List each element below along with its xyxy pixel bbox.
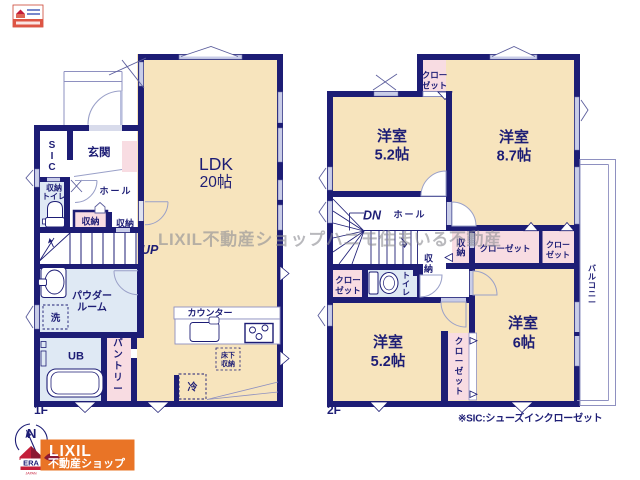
svg-text:ホール: ホール [99,186,132,196]
svg-text:S: S [49,140,56,151]
svg-text:20帖: 20帖 [200,173,233,191]
svg-text:UB: UB [68,351,84,363]
svg-text:2F: 2F [327,403,341,417]
svg-text:ト: ト [113,361,123,372]
svg-text:洋室: 洋室 [373,333,403,351]
svg-text:ホール: ホール [393,210,426,220]
svg-text:ト: ト [455,386,464,396]
svg-text:収納: 収納 [81,216,99,227]
svg-text:洋室: 洋室 [508,314,538,332]
svg-text:LIXIL不動産ショップハニモ住まいる不動産: LIXIL不動産ショップハニモ住まいる不動産 [158,229,502,249]
svg-text:8.7帖: 8.7帖 [497,147,532,165]
svg-text:ー: ー [113,384,123,395]
svg-text:5.2帖: 5.2帖 [375,146,410,164]
svg-text:JAPAN: JAPAN [25,472,36,476]
svg-text:ク: ク [455,336,464,346]
svg-text:収納: 収納 [221,359,235,368]
svg-text:クロー: クロー [546,240,570,250]
svg-text:ERA: ERA [23,459,39,468]
svg-text:N: N [27,426,36,441]
svg-text:ロ: ロ [455,346,464,356]
svg-text:ッ: ッ [455,376,464,386]
svg-text:収: 収 [424,253,434,264]
svg-text:ゼ: ゼ [455,366,464,376]
svg-text:ー: ー [588,298,596,307]
svg-text:リ: リ [113,373,123,384]
svg-text:UP: UP [141,243,159,257]
svg-text:ー: ー [455,356,464,366]
svg-text:6帖: 6帖 [513,334,536,352]
svg-text:玄関: 玄関 [88,145,111,159]
svg-text:ン: ン [113,350,123,361]
svg-text:パ: パ [113,337,123,349]
svg-text:床下: 床下 [221,351,235,360]
svg-text:C: C [48,162,55,173]
svg-text:洋室: 洋室 [377,127,407,145]
svg-text:洋室: 洋室 [499,128,529,146]
svg-text:ゼット: ゼット [422,81,448,91]
svg-text:※SIC:シューズインクローゼット: ※SIC:シューズインクローゼット [458,412,602,425]
svg-text:レ: レ [402,288,410,297]
svg-text:パウダー: パウダー [72,289,112,302]
svg-text:クロー: クロー [335,275,361,285]
svg-text:I: I [51,151,54,162]
svg-text:LDK: LDK [199,154,233,174]
svg-text:カウンター: カウンター [187,307,232,318]
svg-text:不動産ショップ: 不動産ショップ [48,456,126,470]
svg-text:ゼット: ゼット [546,250,570,260]
svg-text:ゼット: ゼット [335,286,361,296]
svg-text:洗: 洗 [51,312,61,324]
svg-text:冷: 冷 [188,381,198,394]
svg-text:5.2帖: 5.2帖 [371,352,406,370]
svg-text:1F: 1F [34,403,48,417]
svg-text:DN: DN [363,209,382,223]
svg-text:クロー: クロー [422,70,448,80]
svg-text:ルーム: ルーム [77,302,107,314]
svg-text:納: 納 [424,263,433,274]
svg-text:収納: 収納 [46,183,62,193]
svg-text:収納: 収納 [116,218,134,229]
svg-text:トイレ: トイレ [42,192,66,201]
